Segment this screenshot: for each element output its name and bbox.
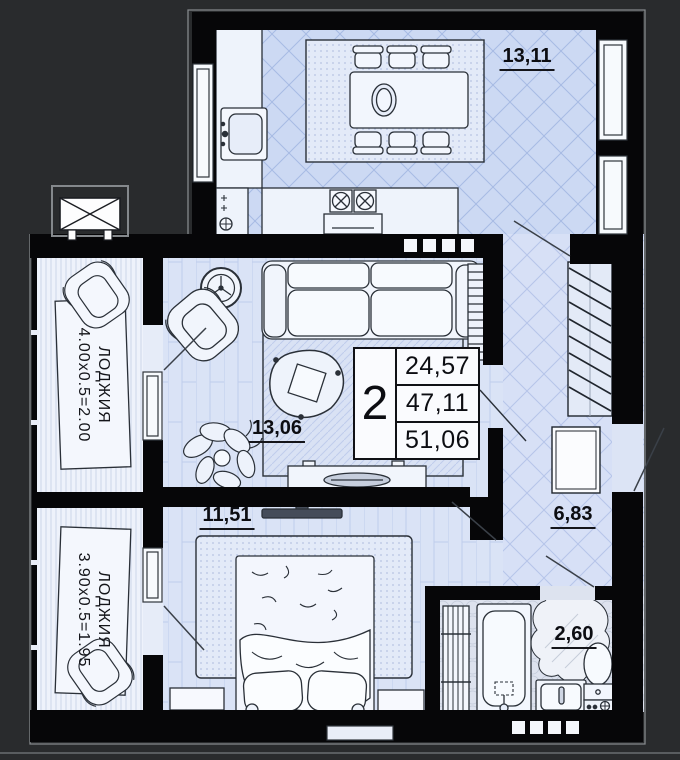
loggia-bottom-label: ЛОДЖИЯ 3.90х0.5=1.95 (73, 553, 113, 668)
toilet (584, 643, 613, 713)
loggia-top-dims: 4.00х0.5=2.00 (73, 328, 93, 443)
apartment-info-box: 2 24,57 47,11 51,06 (353, 347, 480, 460)
bed (236, 556, 374, 726)
area-value-apartment: 47,11 (397, 384, 478, 421)
floor-plan-stage: 13,11 13,06 11,51 6,83 2,60 ЛОДЖИЯ 4.00х… (0, 0, 680, 760)
kitchen-area-label: 13,11 (500, 45, 555, 71)
bathroom-sink (536, 680, 586, 714)
bathroom-area-label: 2,60 (552, 623, 597, 649)
loggia-bottom-dims: 3.90х0.5=1.95 (73, 553, 93, 668)
kitchen-sink (221, 108, 267, 160)
loggia-top-name: ЛОДЖИЯ (93, 328, 113, 443)
nightstand-right (378, 690, 424, 712)
area-value-living: 24,57 (397, 349, 478, 384)
nightstand-left (170, 688, 224, 710)
rooms-count: 2 (355, 349, 397, 458)
wardrobe (568, 262, 612, 416)
sofa (262, 261, 480, 339)
loggia-top-label: ЛОДЖИЯ 4.00х0.5=2.00 (73, 328, 113, 443)
dining-table (350, 72, 468, 128)
living-area-label: 13,06 (249, 417, 305, 443)
bedroom-area-label: 11,51 (200, 504, 255, 530)
towel-radiator (441, 606, 471, 712)
area-values: 24,57 47,11 51,06 (397, 349, 478, 458)
shaft-symbol (52, 186, 128, 240)
bathtub (477, 604, 531, 714)
hallway-area-label: 6,83 (551, 503, 596, 529)
area-value-total: 51,06 (397, 421, 478, 458)
hall-cabinet (552, 427, 600, 493)
loggia-bottom-name: ЛОДЖИЯ (93, 553, 113, 668)
